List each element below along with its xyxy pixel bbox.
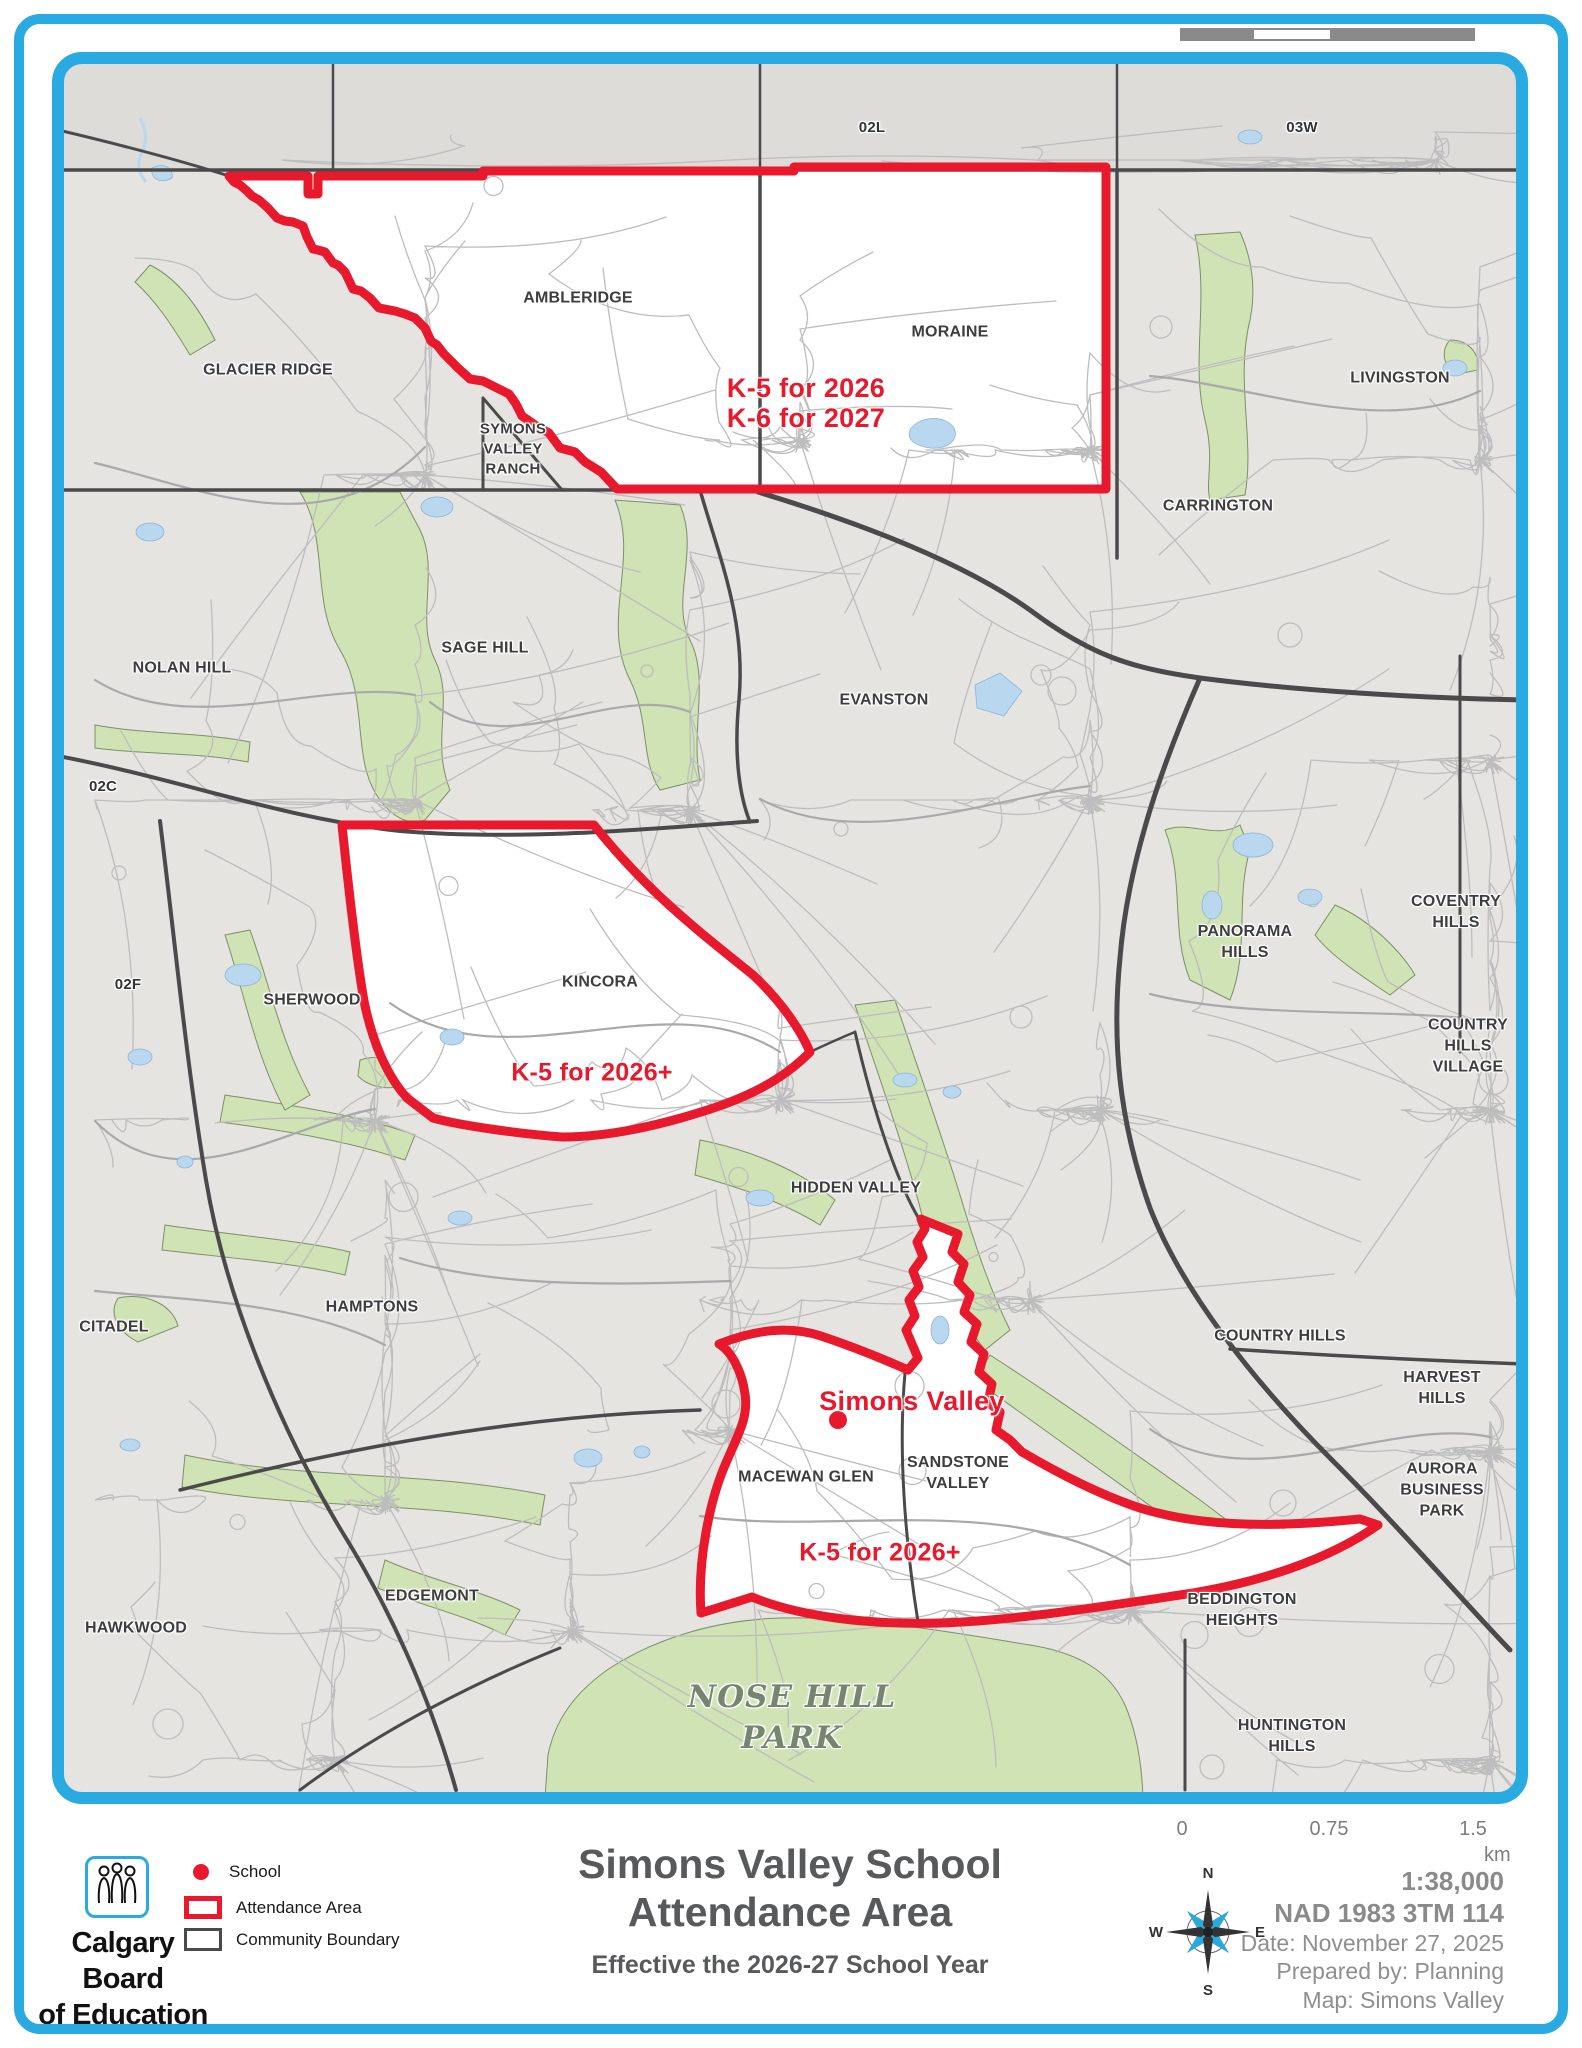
community-label-macewan-glen: MACEWAN GLEN [738, 1466, 874, 1487]
datum: NAD 1983 3TM 114 [1200, 1898, 1504, 1930]
annotation-kincora-k5: K-5 for 2026+ [511, 1057, 673, 1090]
community-label-symons-valley-ranch: SYMONS VALLEY RANCH [480, 419, 546, 478]
legend-label-community: Community Boundary [236, 1930, 399, 1950]
community-label-sage-hill: SAGE HILL [441, 637, 528, 658]
road-label-03w: 03W [1286, 118, 1317, 138]
map-svg [60, 60, 1520, 1796]
community-label-country-hills: COUNTRY HILLS [1214, 1325, 1346, 1346]
scale-bar: 0 0.75 1.5 [0, 1818, 1582, 1864]
community-label-hamptons: HAMPTONS [326, 1296, 419, 1317]
community-label-harvest-hills: HARVEST HILLS [1403, 1367, 1481, 1409]
north-corridor [60, 60, 1520, 170]
legend-label-school: School [229, 1862, 281, 1882]
prepared-by: Prepared by: Planning [1200, 1957, 1504, 1985]
community-label-hidden-valley: HIDDEN VALLEY [791, 1177, 921, 1198]
community-label-edgemont: EDGEMONT [385, 1585, 479, 1606]
map-sheet: 02L 03W 02C 02F GLACIER RIDGE AMBLERIDGE… [0, 0, 1582, 2048]
community-label-citadel: CITADEL [79, 1316, 149, 1337]
school-legend-icon [193, 1864, 209, 1880]
map-date: Date: November 27, 2025 [1200, 1929, 1504, 1957]
community-label-evanston: EVANSTON [839, 689, 928, 710]
map-title-line2: Attendance Area [480, 1888, 1100, 1936]
community-boundary-legend-icon [184, 1928, 222, 1951]
road-label-02f: 02F [115, 975, 141, 995]
community-label-beddington-heights: BEDDINGTON HEIGHTS [1187, 1589, 1296, 1631]
community-label-aurora-business-park: AURORA BUSINESS PARK [1400, 1458, 1483, 1521]
community-label-moraine: MORAINE [912, 321, 989, 342]
map-subtitle: Effective the 2026-27 School Year [480, 1951, 1100, 1980]
community-label-panorama-hills: PANORAMA HILLS [1198, 921, 1293, 963]
scale-tick-mid: 0.75 [1310, 1818, 1349, 1841]
scale-bar-graphic [1180, 28, 1475, 41]
community-label-hawkwood: HAWKWOOD [85, 1617, 187, 1638]
annotation-south-k5: K-5 for 2026+ [799, 1537, 961, 1570]
community-label-kincora: KINCORA [562, 971, 638, 992]
school-name-label: Simons Valley [819, 1384, 1005, 1420]
community-label-coventry-hills: COVENTRY HILLS [1411, 891, 1501, 933]
community-label-sandstone-valley: SANDSTONE VALLEY [907, 1452, 1009, 1494]
cbe-logo-figures [88, 1859, 146, 1915]
community-label-country-hills-village: COUNTRY HILLS VILLAGE [1428, 1014, 1508, 1077]
map-canvas [60, 60, 1520, 1796]
map-info-block: 1:38,000 NAD 1983 3TM 114 Date: November… [1200, 1866, 1504, 2014]
community-label-nolan-hill: NOLAN HILL [133, 657, 232, 678]
road-label-02l: 02L [859, 118, 885, 138]
community-label-carrington: CARRINGTON [1163, 495, 1273, 516]
scale-tick-max: 1.5 [1459, 1818, 1487, 1841]
park-label-nose-hill: NOSE HILL PARK [688, 1677, 897, 1759]
compass-w: W [1149, 1924, 1164, 1941]
community-label-glacier-ridge: GLACIER RIDGE [203, 359, 333, 380]
community-label-ambleridge: AMBLERIDGE [523, 287, 633, 308]
scale-ratio: 1:38,000 [1200, 1866, 1504, 1898]
annotation-k6-2027: K-6 for 2027 [727, 401, 885, 437]
scale-tick-0: 0 [1176, 1818, 1187, 1841]
cbe-logo [85, 1856, 149, 1918]
map-name: Map: Simons Valley [1200, 1986, 1504, 2014]
scale-unit: km [1484, 1844, 1511, 1867]
brand-line2: of Education [28, 1998, 218, 2034]
community-label-huntington-hills: HUNTINGTON HILLS [1238, 1715, 1346, 1757]
legend-label-attendance: Attendance Area [236, 1898, 362, 1918]
community-label-sherwood: SHERWOOD [263, 989, 360, 1010]
attendance-area-legend-icon [184, 1896, 222, 1919]
community-label-livingston: LIVINGSTON [1350, 367, 1450, 388]
road-label-02c: 02C [89, 777, 117, 797]
